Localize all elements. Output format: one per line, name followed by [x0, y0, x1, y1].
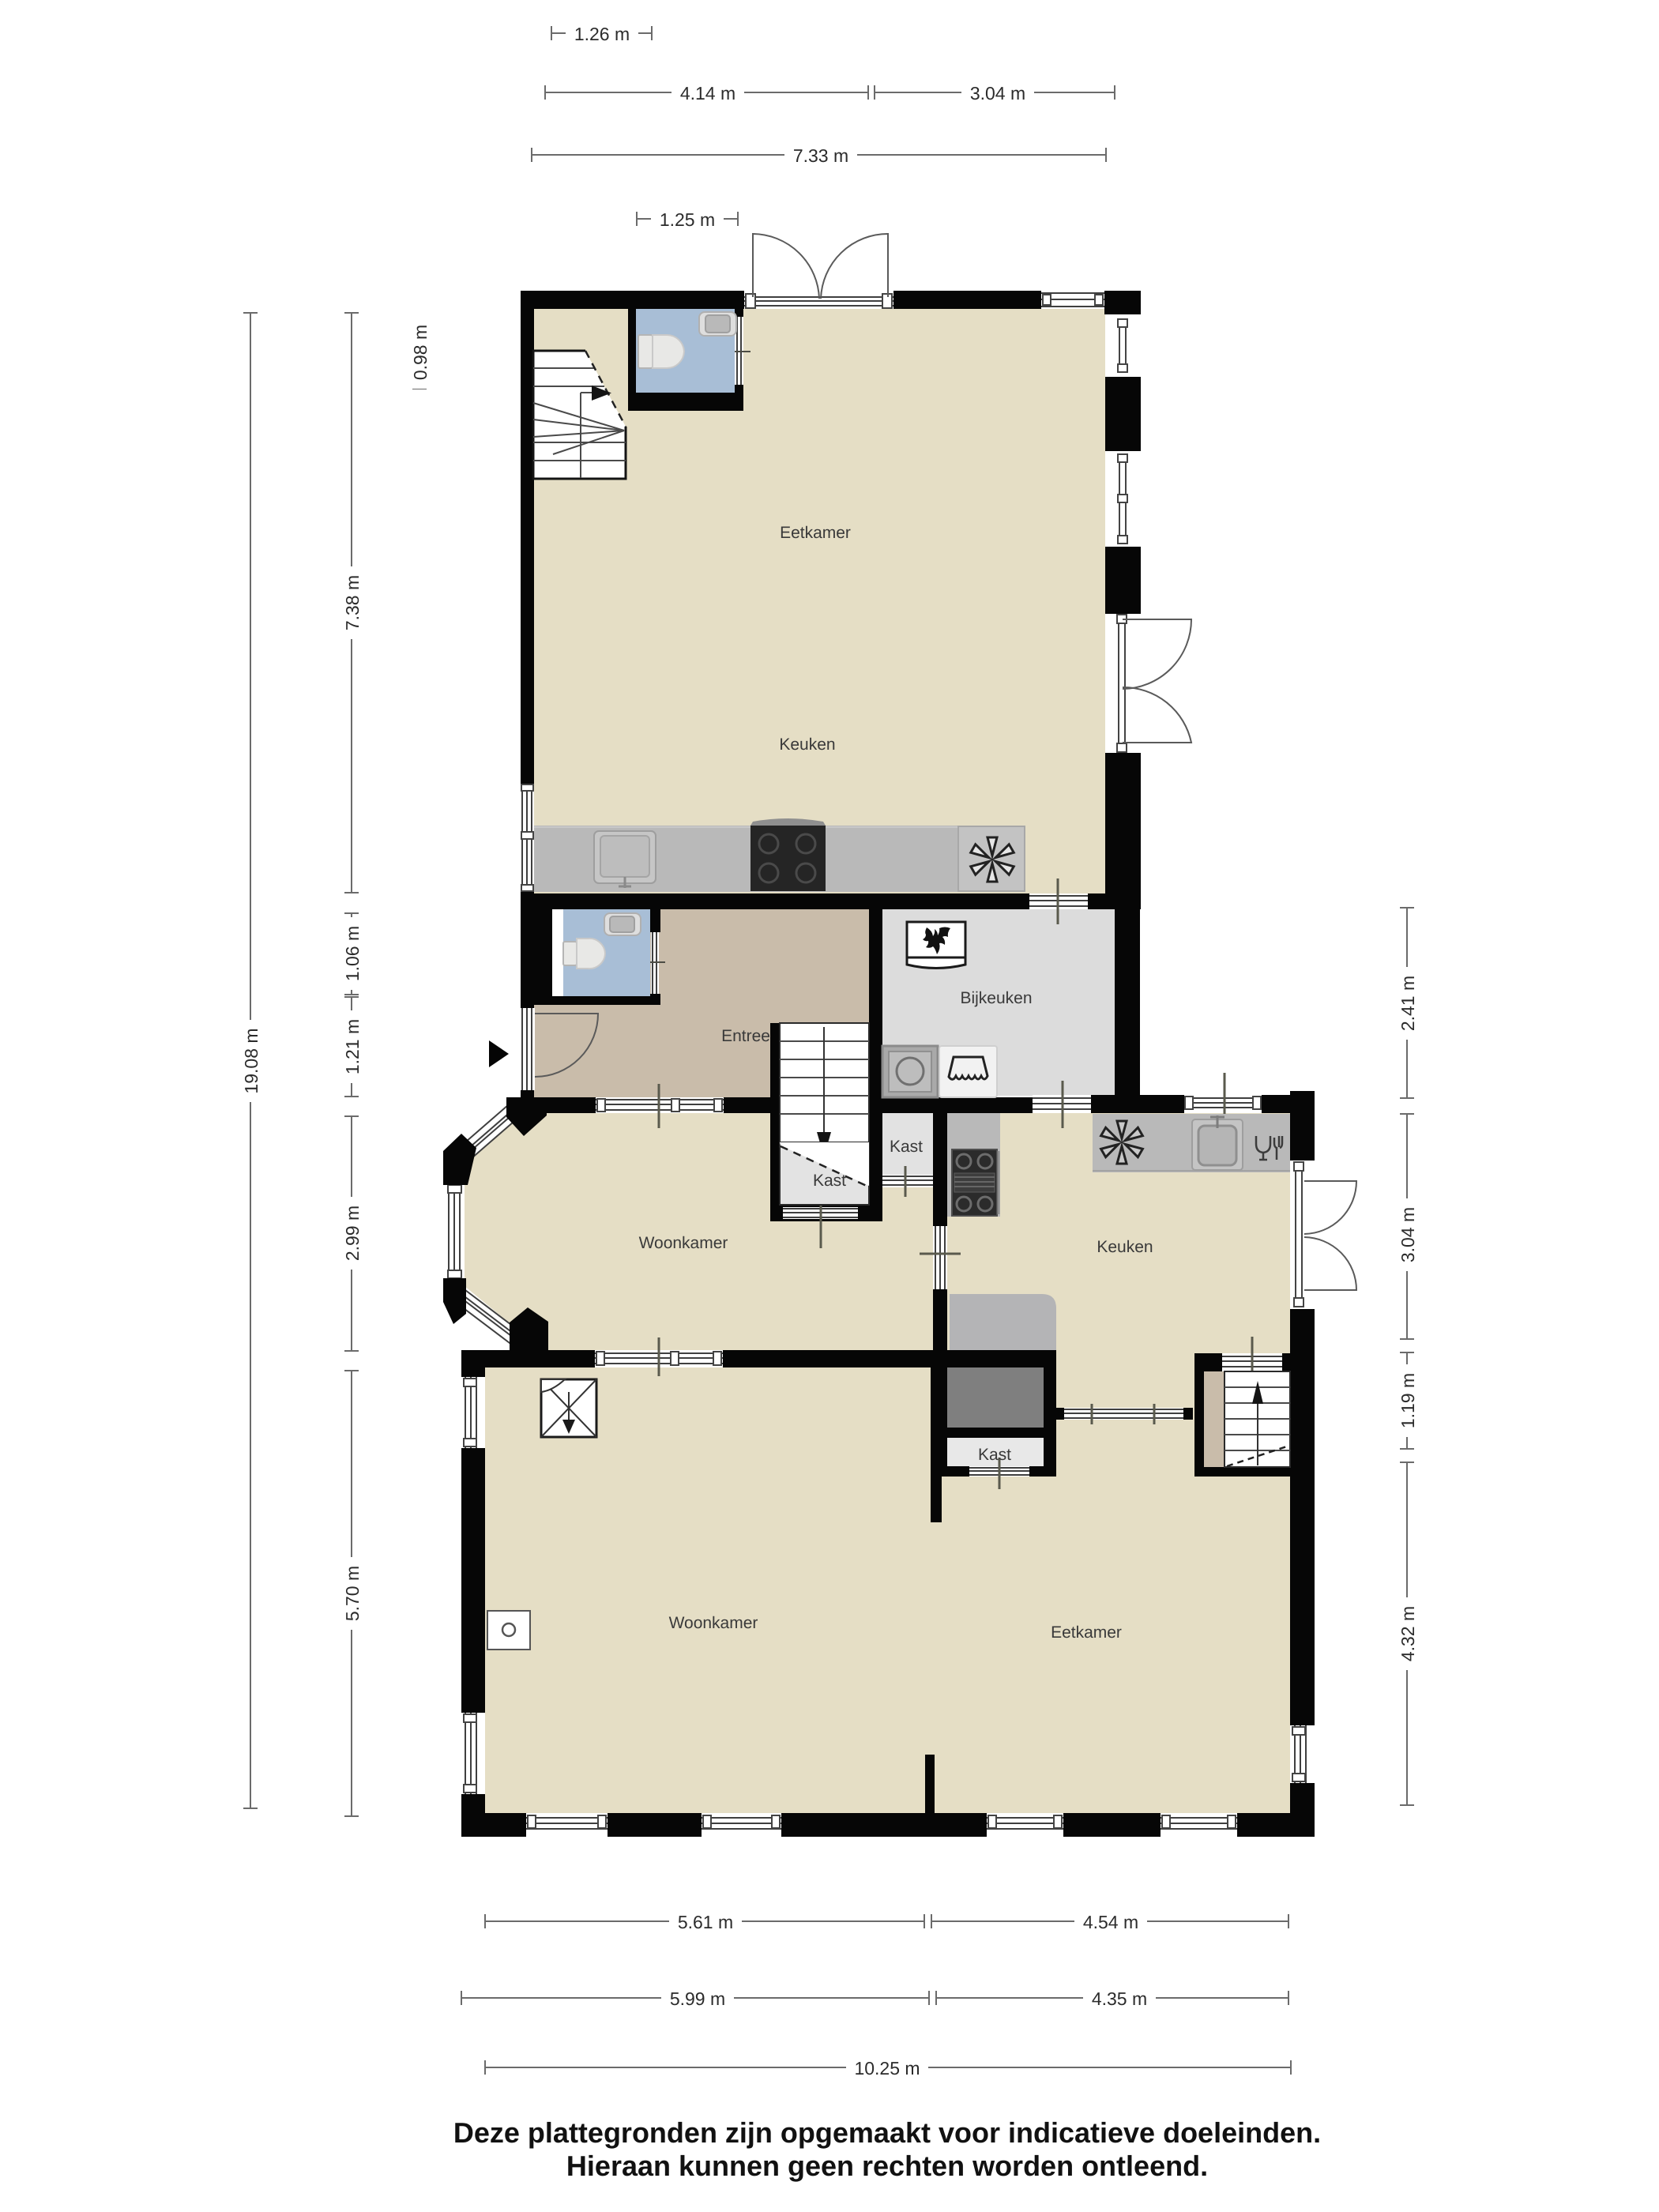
svg-text:1.19 m: 1.19 m	[1398, 1373, 1418, 1428]
svg-text:Kast: Kast	[813, 1172, 846, 1190]
svg-text:Bijkeuken: Bijkeuken	[960, 989, 1032, 1007]
svg-text:Eetkamer: Eetkamer	[780, 524, 851, 542]
svg-text:1.25 m: 1.25 m	[660, 209, 715, 230]
svg-text:Keuken: Keuken	[1097, 1238, 1153, 1256]
svg-text:2.99 m: 2.99 m	[342, 1206, 363, 1261]
svg-text:Deze plattegronden zijn opgema: Deze plattegronden zijn opgemaakt voor i…	[453, 2116, 1321, 2149]
svg-text:Woonkamer: Woonkamer	[669, 1614, 758, 1632]
svg-text:Hieraan kunnen geen rechten wo: Hieraan kunnen geen rechten worden ontle…	[566, 2150, 1208, 2182]
svg-text:1.21 m: 1.21 m	[342, 1019, 363, 1074]
svg-text:3.04 m: 3.04 m	[970, 83, 1025, 103]
svg-text:Keuken: Keuken	[779, 735, 835, 754]
svg-text:19.08 m: 19.08 m	[241, 1028, 261, 1093]
svg-text:7.33 m: 7.33 m	[793, 145, 848, 166]
svg-text:Kast: Kast	[978, 1446, 1011, 1464]
svg-text:4.14 m: 4.14 m	[680, 83, 735, 103]
svg-text:Woonkamer: Woonkamer	[639, 1234, 728, 1252]
svg-text:5.99 m: 5.99 m	[670, 1988, 725, 2009]
svg-text:4.54 m: 4.54 m	[1083, 1912, 1138, 1932]
svg-text:5.61 m: 5.61 m	[678, 1912, 733, 1932]
svg-text:Eetkamer: Eetkamer	[1051, 1623, 1122, 1642]
svg-text:3.04 m: 3.04 m	[1398, 1207, 1418, 1262]
svg-text:1.26 m: 1.26 m	[574, 24, 630, 44]
svg-text:5.70 m: 5.70 m	[342, 1566, 363, 1621]
svg-text:4.32 m: 4.32 m	[1398, 1606, 1418, 1661]
svg-text:Kast: Kast	[890, 1138, 923, 1156]
svg-text:7.38 m: 7.38 m	[342, 575, 363, 630]
svg-text:Entree: Entree	[721, 1027, 770, 1045]
svg-text:2.41 m: 2.41 m	[1398, 976, 1418, 1031]
svg-text:4.35 m: 4.35 m	[1092, 1988, 1147, 2009]
svg-text:10.25 m: 10.25 m	[854, 2058, 920, 2078]
svg-text:0.98 m: 0.98 m	[410, 325, 431, 380]
svg-text:1.06 m: 1.06 m	[342, 926, 363, 981]
